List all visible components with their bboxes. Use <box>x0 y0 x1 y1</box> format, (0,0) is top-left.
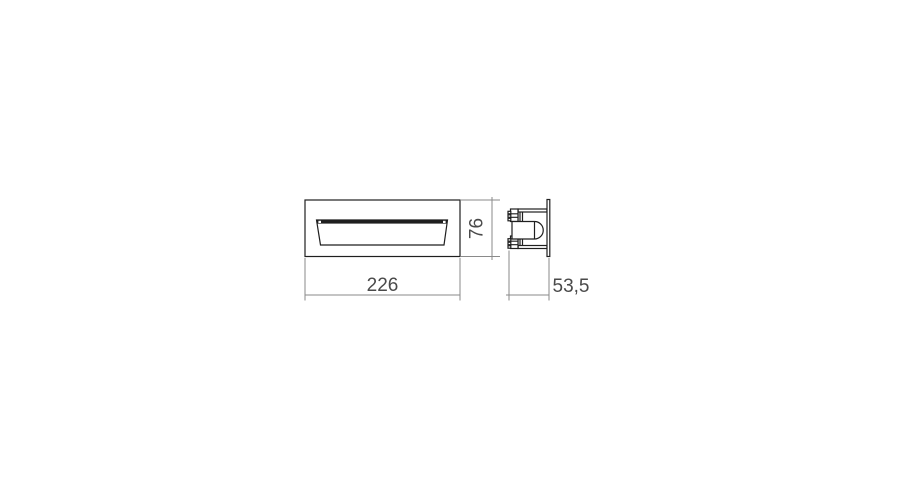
side-clip-lower-tooth-2 <box>508 242 511 245</box>
side-clip-upper-tooth-2 <box>508 215 511 218</box>
dimension-width: 226 <box>305 258 460 301</box>
drawing-svg: 226 76 53,5 <box>0 0 900 500</box>
dimension-depth: 53,5 <box>506 251 589 301</box>
dimension-width-label: 226 <box>367 275 399 296</box>
front-light-slot <box>317 220 448 224</box>
side-front-flange <box>547 200 550 257</box>
front-slot-notch-right <box>443 221 446 223</box>
side-view <box>508 200 550 257</box>
side-clip-upper-tooth-1 <box>508 211 511 214</box>
side-clip-upper-tooth-3 <box>508 218 511 221</box>
side-clip-lower-tooth-3 <box>508 246 511 249</box>
side-screw-capsule <box>512 222 543 240</box>
technical-drawing-canvas: 226 76 53,5 <box>0 0 900 500</box>
dimension-height: 76 <box>461 197 500 260</box>
front-reflector-opening <box>317 220 448 245</box>
side-clip-upper <box>508 209 518 222</box>
front-slot-notch-left <box>318 221 321 223</box>
dimension-height-label: 76 <box>467 218 488 239</box>
side-body-bottom-wall <box>518 246 547 249</box>
side-body-top-wall <box>518 209 547 212</box>
dimension-depth-label: 53,5 <box>553 276 590 297</box>
side-clip-lower-tooth-1 <box>508 239 511 242</box>
front-view <box>305 200 460 257</box>
side-clip-upper-block <box>511 209 519 222</box>
